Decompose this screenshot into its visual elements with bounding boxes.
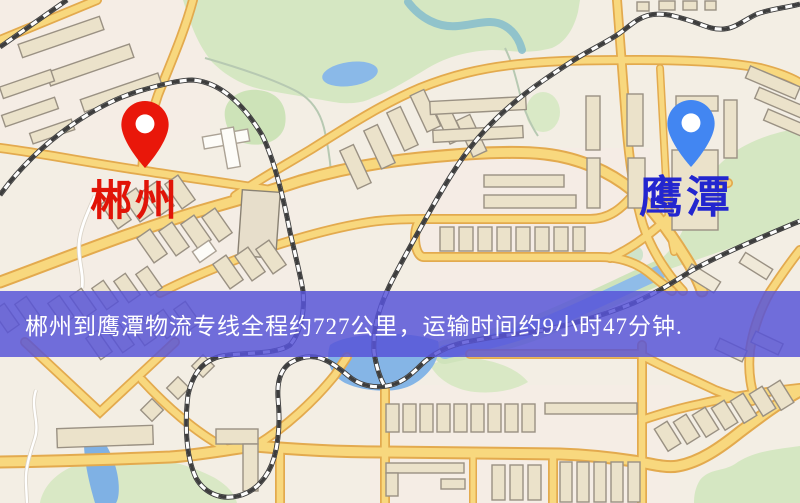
- destination-pin-shape: [667, 100, 714, 167]
- destination-pin-hole: [682, 113, 701, 132]
- map-viewport[interactable]: 郴州 鹰潭 郴州到鹰潭物流专线全程约727公里，运输时间约9小时47分钟.: [0, 0, 800, 503]
- route-info-text: 郴州到鹰潭物流专线全程约727公里，运输时间约9小时47分钟.: [0, 307, 683, 341]
- origin-pin-icon[interactable]: [121, 101, 169, 168]
- map-canvas[interactable]: [0, 0, 800, 503]
- origin-pin-hole: [136, 114, 155, 133]
- route-info-banner: 郴州到鹰潭物流专线全程约727公里，运输时间约9小时47分钟.: [0, 291, 800, 357]
- destination-pin-icon[interactable]: [667, 100, 715, 167]
- origin-city-label: 郴州: [90, 181, 180, 223]
- origin-pin-shape: [121, 101, 168, 168]
- destination-city-label: 鹰潭: [639, 176, 733, 220]
